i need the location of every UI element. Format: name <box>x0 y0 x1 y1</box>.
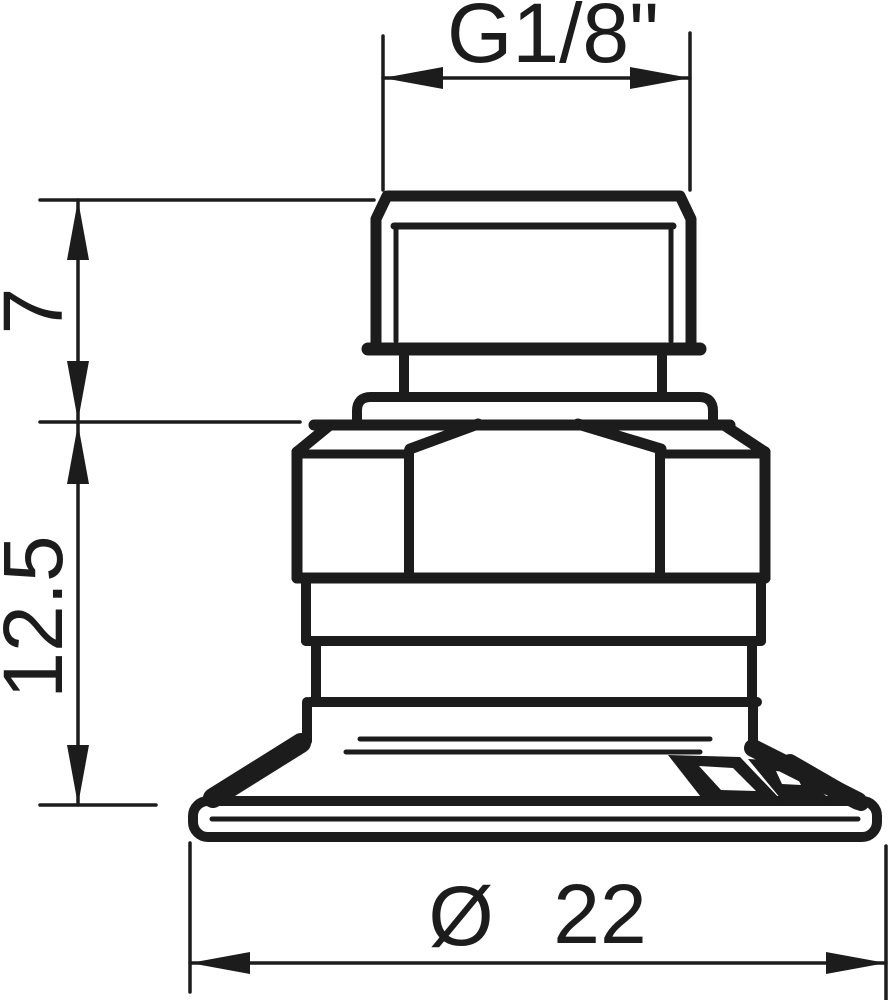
drawing-svg: G1/8" 7 12.5 Ø 22 <box>0 0 890 1000</box>
arrowhead-7-bottom <box>67 361 89 421</box>
arrowhead-125-bottom <box>67 745 89 805</box>
arrowhead-thread-left <box>383 67 443 89</box>
dimension-lines <box>40 33 886 1000</box>
thread-height-label: 7 <box>0 288 80 335</box>
body-height-label: 12.5 <box>0 535 80 699</box>
arrowhead-diameter-right <box>826 952 886 974</box>
arrowhead-diameter-left <box>190 952 250 974</box>
diameter-value-label: 22 <box>553 867 646 961</box>
diameter-symbol: Ø <box>428 869 493 963</box>
arrowhead-125-top <box>67 424 89 484</box>
technical-drawing-canvas: G1/8" 7 12.5 Ø 22 <box>0 0 890 1000</box>
hex-right-chamfer <box>724 425 765 452</box>
bead-dot <box>262 756 274 768</box>
thread-block-outline <box>376 196 691 348</box>
bead-dot <box>241 769 253 781</box>
arrowhead-7-top <box>67 200 89 260</box>
bead-dot <box>220 782 232 794</box>
part-outline <box>193 196 877 837</box>
thread-size-label: G1/8" <box>447 0 659 80</box>
